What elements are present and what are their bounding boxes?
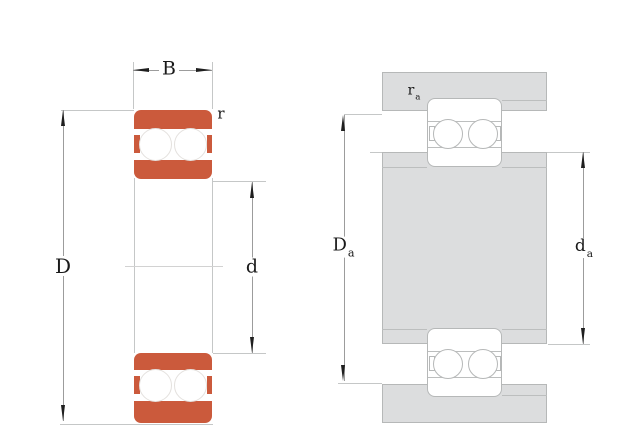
mounted-bearing-bottom <box>427 328 502 397</box>
arrowhead-icon <box>341 365 345 381</box>
arrowhead-icon <box>581 152 585 168</box>
arrowhead-icon <box>581 328 585 344</box>
shaft-seat-line <box>382 329 427 330</box>
arrowhead-icon <box>196 68 212 72</box>
label-width-B: B <box>159 60 179 79</box>
bearing-dimension-diagram: B r D d <box>0 0 640 440</box>
bottom-ring-land-right <box>207 376 213 394</box>
shaft-section <box>382 152 547 344</box>
ball <box>174 128 207 161</box>
label-subscript: a <box>348 247 355 260</box>
extension-line <box>212 62 213 109</box>
label-main: d <box>575 236 586 256</box>
mounted-bearing-top <box>427 98 502 167</box>
shaft-seat-line <box>382 167 427 168</box>
extension-line <box>60 424 213 425</box>
ball <box>139 128 172 161</box>
arrowhead-icon <box>341 115 345 131</box>
label-corner-radius-r: r <box>214 107 227 122</box>
label-subscript: a <box>587 248 593 260</box>
label-main: r <box>408 82 415 98</box>
label-shaft-shoulder-da: da <box>572 238 596 258</box>
label-fillet-radius-ra: ra <box>405 83 424 100</box>
extension-line <box>61 110 134 111</box>
shaft-seat-line <box>502 167 547 168</box>
extension-line <box>548 344 590 345</box>
label-outer-diameter-D: D <box>52 256 74 276</box>
arrowhead-icon <box>133 68 149 72</box>
extension-line <box>338 383 382 384</box>
ball <box>468 349 498 379</box>
extension-line <box>213 181 266 182</box>
label-bore-diameter-d: d <box>243 258 261 277</box>
ball <box>433 349 463 379</box>
ball <box>468 119 498 149</box>
ball <box>139 369 172 402</box>
label-housing-shoulder-Da: Da <box>329 237 357 258</box>
extension-line <box>344 114 383 115</box>
arrowhead-icon <box>250 182 254 198</box>
ball <box>174 369 207 402</box>
label-main: D <box>332 235 346 256</box>
arrowhead-icon <box>250 337 254 353</box>
ball <box>433 119 463 149</box>
arrowhead-icon <box>61 110 65 126</box>
arrowhead-icon <box>61 405 65 421</box>
shaft-shoulder-edge-line <box>370 152 382 153</box>
shaft-seat-line <box>502 329 547 330</box>
housing-bore-line <box>502 395 547 396</box>
label-subscript: a <box>415 92 420 102</box>
axis-centerline <box>125 266 223 267</box>
top-ring-land-right <box>207 135 213 153</box>
extension-line <box>213 353 266 354</box>
housing-bore-line <box>502 100 547 101</box>
